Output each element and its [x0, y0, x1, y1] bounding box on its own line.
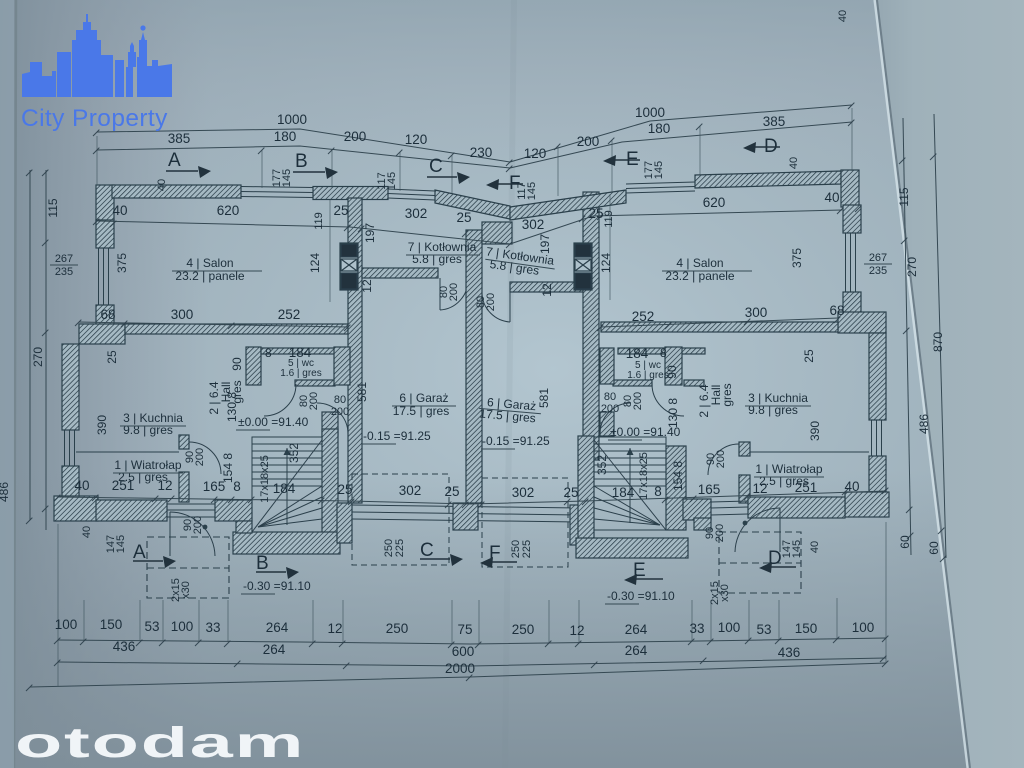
- svg-text:200: 200: [714, 524, 726, 542]
- svg-text:200: 200: [448, 283, 460, 301]
- svg-text:165: 165: [203, 479, 226, 494]
- svg-text:264: 264: [263, 642, 286, 657]
- svg-text:A: A: [133, 542, 146, 563]
- svg-text:302: 302: [522, 217, 545, 232]
- svg-text:40: 40: [156, 179, 168, 191]
- svg-text:225: 225: [521, 540, 533, 558]
- svg-text:90: 90: [230, 357, 244, 371]
- svg-text:17x18x25: 17x18x25: [638, 452, 650, 500]
- svg-text:302: 302: [405, 206, 428, 221]
- svg-text:200: 200: [485, 293, 497, 311]
- svg-text:x30: x30: [180, 581, 192, 599]
- svg-text:80: 80: [334, 394, 346, 406]
- svg-text:C: C: [420, 540, 434, 561]
- svg-text:270: 270: [31, 347, 45, 367]
- svg-text:-0.15 =91.25: -0.15 =91.25: [482, 434, 550, 448]
- svg-text:±0.00 =91.40: ±0.00 =91.40: [610, 425, 681, 439]
- svg-text:385: 385: [168, 131, 191, 146]
- svg-text:17x18x25: 17x18x25: [259, 455, 271, 503]
- svg-text:302: 302: [512, 485, 535, 500]
- svg-text:B: B: [295, 151, 308, 172]
- svg-text:184: 184: [626, 346, 649, 361]
- svg-text:25: 25: [802, 349, 816, 363]
- svg-text:300: 300: [745, 305, 768, 320]
- svg-text:200: 200: [577, 134, 600, 149]
- svg-text:197: 197: [363, 223, 377, 243]
- svg-text:53: 53: [144, 619, 159, 634]
- svg-text:25: 25: [105, 350, 119, 364]
- svg-text:119: 119: [603, 210, 615, 228]
- svg-text:100: 100: [55, 617, 78, 632]
- svg-text:264: 264: [625, 622, 648, 637]
- svg-text:600: 600: [452, 644, 475, 659]
- svg-text:302: 302: [399, 483, 422, 498]
- svg-text:145: 145: [653, 161, 665, 179]
- svg-text:9.8 | gres: 9.8 | gres: [123, 423, 173, 437]
- svg-text:251: 251: [795, 480, 818, 495]
- svg-text:130 8: 130 8: [666, 398, 680, 428]
- svg-text:235: 235: [55, 266, 73, 278]
- svg-text:25: 25: [456, 210, 471, 225]
- svg-text:200: 200: [192, 516, 204, 534]
- svg-text:267: 267: [55, 253, 73, 265]
- svg-text:267: 267: [869, 252, 887, 264]
- svg-text:-0.30 =91.10: -0.30 =91.10: [607, 589, 675, 603]
- svg-text:1.6 | gres: 1.6 | gres: [280, 368, 322, 379]
- svg-text:115: 115: [897, 187, 911, 206]
- svg-text:±0.00 =91.40: ±0.00 =91.40: [238, 415, 309, 429]
- svg-text:250: 250: [512, 622, 535, 637]
- svg-text:4 | Salon: 4 | Salon: [186, 256, 233, 270]
- svg-text:251: 251: [112, 478, 135, 493]
- svg-text:25: 25: [563, 485, 578, 500]
- svg-text:145: 145: [386, 172, 398, 190]
- svg-text:385: 385: [763, 114, 786, 129]
- svg-text:gres: gres: [720, 383, 734, 406]
- svg-text:581: 581: [355, 382, 369, 402]
- svg-text:620: 620: [217, 203, 240, 218]
- svg-text:200: 200: [715, 450, 727, 468]
- svg-text:1000: 1000: [277, 112, 307, 127]
- svg-text:12: 12: [360, 279, 374, 293]
- svg-text:8: 8: [233, 479, 241, 494]
- svg-text:200: 200: [632, 392, 644, 410]
- svg-text:150: 150: [100, 617, 123, 632]
- svg-text:40: 40: [112, 203, 127, 218]
- svg-text:390: 390: [808, 421, 822, 441]
- svg-text:25: 25: [337, 482, 352, 497]
- svg-text:40: 40: [809, 541, 821, 553]
- svg-text:230: 230: [470, 145, 493, 160]
- svg-text:gres: gres: [230, 380, 244, 403]
- svg-text:40: 40: [81, 526, 93, 538]
- svg-text:200: 200: [331, 406, 349, 418]
- svg-text:-0.30 =91.10: -0.30 =91.10: [243, 579, 311, 593]
- svg-text:B: B: [256, 553, 269, 574]
- svg-text:8: 8: [654, 484, 662, 499]
- svg-text:C: C: [429, 156, 443, 177]
- svg-text:436: 436: [778, 645, 801, 660]
- svg-text:12: 12: [157, 478, 172, 493]
- svg-text:2000: 2000: [445, 661, 475, 676]
- svg-text:100: 100: [171, 619, 194, 634]
- svg-text:375: 375: [115, 253, 129, 273]
- svg-text:352: 352: [595, 455, 609, 475]
- svg-text:75: 75: [457, 622, 472, 637]
- svg-text:375: 375: [790, 248, 804, 268]
- svg-text:184: 184: [612, 485, 635, 500]
- svg-text:352: 352: [287, 443, 301, 463]
- svg-text:264: 264: [266, 620, 289, 635]
- svg-text:145: 145: [791, 540, 803, 558]
- svg-text:4 | Salon: 4 | Salon: [676, 256, 723, 270]
- svg-text:40: 40: [844, 479, 859, 494]
- svg-text:68: 68: [100, 307, 115, 322]
- svg-text:124: 124: [308, 253, 322, 273]
- svg-text:12: 12: [752, 481, 767, 496]
- svg-text:264: 264: [625, 643, 648, 658]
- svg-text:180: 180: [274, 129, 297, 144]
- svg-text:436: 436: [113, 639, 136, 654]
- svg-text:620: 620: [703, 195, 726, 210]
- svg-text:x30: x30: [719, 584, 731, 602]
- svg-text:120: 120: [524, 146, 547, 161]
- svg-text:180: 180: [648, 121, 671, 136]
- svg-text:270: 270: [905, 257, 919, 277]
- svg-text:9.8 | gres: 9.8 | gres: [748, 403, 798, 417]
- svg-text:25: 25: [333, 203, 348, 218]
- svg-text:581: 581: [537, 388, 551, 408]
- svg-text:486: 486: [0, 482, 11, 502]
- svg-text:184: 184: [273, 481, 296, 496]
- svg-text:40: 40: [824, 190, 839, 205]
- svg-text:40: 40: [837, 10, 849, 22]
- svg-text:870: 870: [931, 332, 945, 352]
- svg-text:60: 60: [927, 541, 941, 555]
- svg-text:252: 252: [278, 307, 301, 322]
- svg-text:12: 12: [569, 623, 584, 638]
- svg-text:otodam: otodam: [15, 719, 305, 767]
- svg-text:25: 25: [588, 206, 603, 221]
- svg-text:8: 8: [265, 346, 272, 360]
- svg-text:40: 40: [788, 157, 800, 169]
- svg-text:250: 250: [386, 621, 409, 636]
- svg-text:-0.15 =91.25: -0.15 =91.25: [363, 429, 431, 443]
- svg-text:145: 145: [281, 169, 293, 187]
- svg-text:225: 225: [394, 539, 406, 557]
- svg-text:25: 25: [444, 484, 459, 499]
- svg-text:145: 145: [115, 535, 127, 553]
- svg-text:53: 53: [756, 622, 771, 637]
- svg-text:300: 300: [171, 307, 194, 322]
- svg-text:200: 200: [308, 392, 320, 410]
- svg-text:150: 150: [795, 621, 818, 636]
- svg-text:A: A: [168, 150, 181, 171]
- svg-text:1000: 1000: [635, 105, 665, 120]
- svg-text:124: 124: [599, 253, 613, 273]
- svg-text:1.6 | gres: 1.6 | gres: [627, 370, 669, 381]
- svg-text:252: 252: [632, 309, 655, 324]
- svg-text:5.8 | gres: 5.8 | gres: [412, 252, 462, 266]
- svg-text:City Property: City Property: [21, 105, 168, 132]
- svg-text:40: 40: [74, 478, 89, 493]
- svg-text:33: 33: [205, 620, 220, 635]
- svg-text:80: 80: [604, 391, 616, 403]
- svg-text:235: 235: [869, 265, 887, 277]
- svg-text:12: 12: [327, 621, 342, 636]
- svg-text:119: 119: [313, 212, 325, 230]
- svg-text:486: 486: [917, 414, 931, 434]
- svg-text:6 | Garaż: 6 | Garaż: [399, 391, 448, 405]
- svg-text:100: 100: [852, 620, 875, 635]
- svg-text:154 8: 154 8: [671, 461, 685, 491]
- svg-text:33: 33: [689, 621, 704, 636]
- svg-text:200: 200: [344, 129, 367, 144]
- svg-text:200: 200: [194, 448, 206, 466]
- svg-text:390: 390: [95, 415, 109, 435]
- svg-text:115: 115: [46, 198, 60, 217]
- svg-text:12: 12: [540, 283, 554, 297]
- svg-text:100: 100: [718, 620, 741, 635]
- svg-text:200: 200: [601, 403, 619, 415]
- svg-text:8: 8: [660, 346, 667, 360]
- svg-text:68: 68: [829, 303, 844, 318]
- svg-text:60: 60: [898, 535, 912, 549]
- svg-text:165: 165: [698, 482, 721, 497]
- svg-text:120: 120: [405, 132, 428, 147]
- svg-text:145: 145: [526, 182, 538, 200]
